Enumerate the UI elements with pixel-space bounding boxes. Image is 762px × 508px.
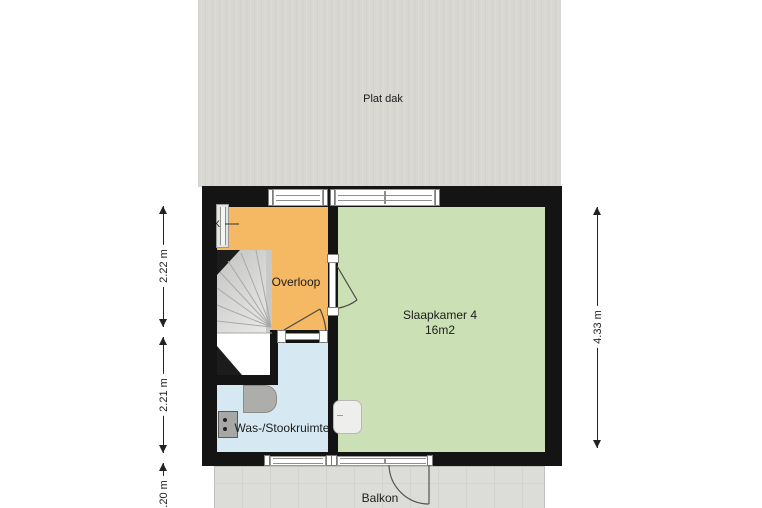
window-pane xyxy=(220,207,226,245)
door-jamb xyxy=(319,330,328,343)
dimension-arrow-up xyxy=(159,337,167,345)
dimension-left-top: 2.22 m xyxy=(158,245,170,287)
window-jamb xyxy=(435,189,440,206)
wall-right xyxy=(545,186,562,466)
flat-roof-label: Plat dak xyxy=(333,92,433,106)
dimension-arrow-down xyxy=(159,445,167,453)
dimension-left-middle: 2.21 m xyxy=(158,374,170,416)
dimension-arrow-down xyxy=(159,319,167,327)
window-bottom-bedroom xyxy=(337,456,429,466)
wall-stair-bottom xyxy=(217,375,278,385)
dimension-left-bottom: 1.20 m xyxy=(158,476,170,508)
floorplan-canvas: Plat dak K xyxy=(0,0,762,508)
window-divider xyxy=(384,458,386,464)
slaapkamer-area: 16m2 xyxy=(380,323,500,338)
wasruimte-label: Was-/Stookruimte xyxy=(222,421,342,435)
dimension-arrow-up xyxy=(159,463,167,471)
dimension-right: 4.33 m xyxy=(592,306,604,348)
stairwell-void xyxy=(217,333,272,375)
window-top-bedroom xyxy=(335,189,435,206)
overloop-door-threshold xyxy=(285,333,320,340)
dimension-arrow-up xyxy=(159,206,167,214)
window-jamb xyxy=(323,189,328,206)
door-jamb xyxy=(327,307,339,316)
staircase-handrail xyxy=(266,250,272,333)
balcony-label: Balkon xyxy=(340,491,420,505)
door-jamb xyxy=(427,455,433,466)
window-marker-k: K xyxy=(214,219,220,229)
dimension-arrow-down xyxy=(593,440,601,448)
window-pane xyxy=(276,195,320,201)
window-bottom-wasruimte xyxy=(270,456,326,466)
dimension-arrow-up xyxy=(593,207,601,215)
overloop-label: Overloop xyxy=(256,275,336,289)
radiator-valve xyxy=(337,415,343,416)
slaapkamer-label: Slaapkamer 4 xyxy=(380,308,500,323)
window-divider xyxy=(384,191,386,204)
window-top-overloop xyxy=(273,189,323,206)
staircase xyxy=(217,250,272,333)
window-pane xyxy=(273,458,323,464)
washing-machine xyxy=(243,385,277,413)
window-pane xyxy=(340,458,426,464)
slaapkamer-label-group: Slaapkamer 4 16m2 xyxy=(380,308,500,338)
